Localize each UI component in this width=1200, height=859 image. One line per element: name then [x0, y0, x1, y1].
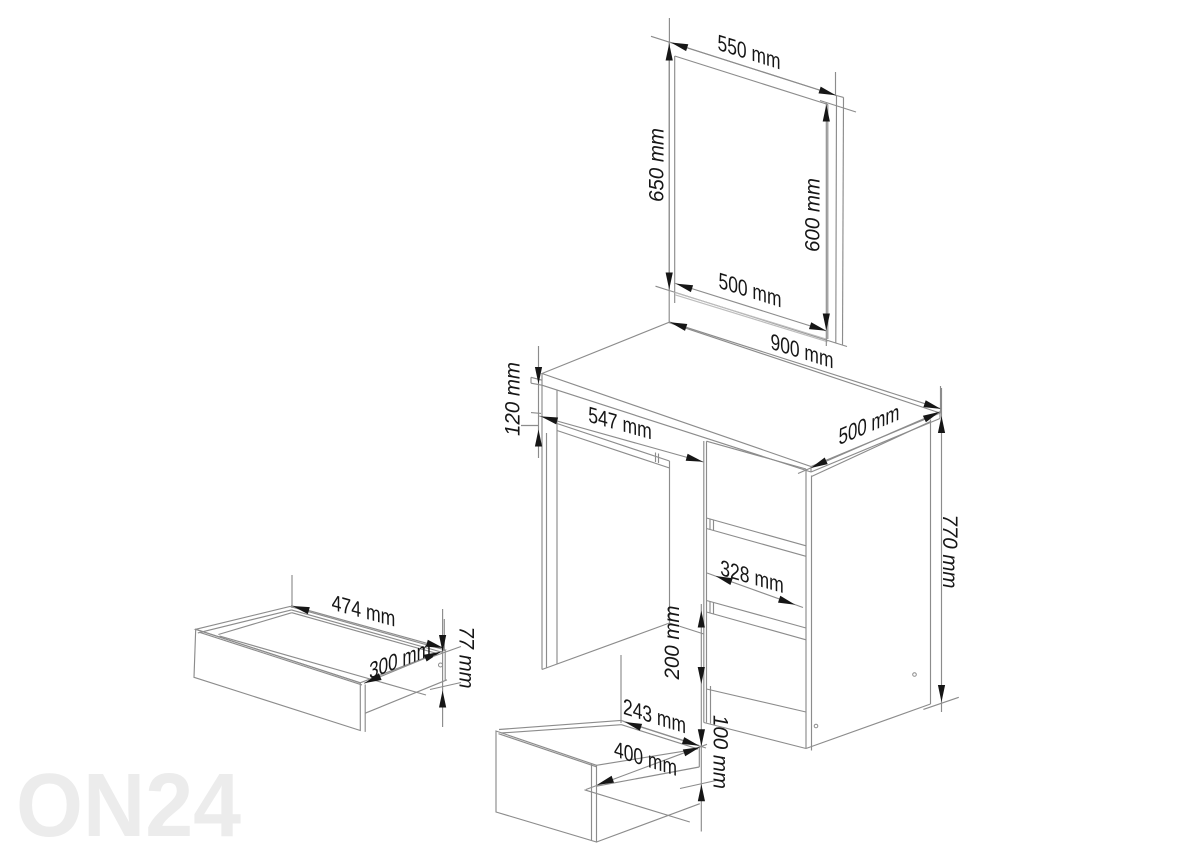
svg-text:100 mm: 100 mm: [709, 715, 733, 789]
svg-text:650 mm: 650 mm: [645, 128, 669, 202]
svg-text:200 mm: 200 mm: [660, 606, 684, 681]
svg-text:77 mm: 77 mm: [455, 627, 479, 689]
svg-text:120 mm: 120 mm: [501, 362, 525, 436]
svg-text:ON24: ON24: [16, 756, 241, 856]
svg-text:770 mm: 770 mm: [938, 515, 962, 589]
svg-text:600 mm: 600 mm: [801, 178, 825, 252]
